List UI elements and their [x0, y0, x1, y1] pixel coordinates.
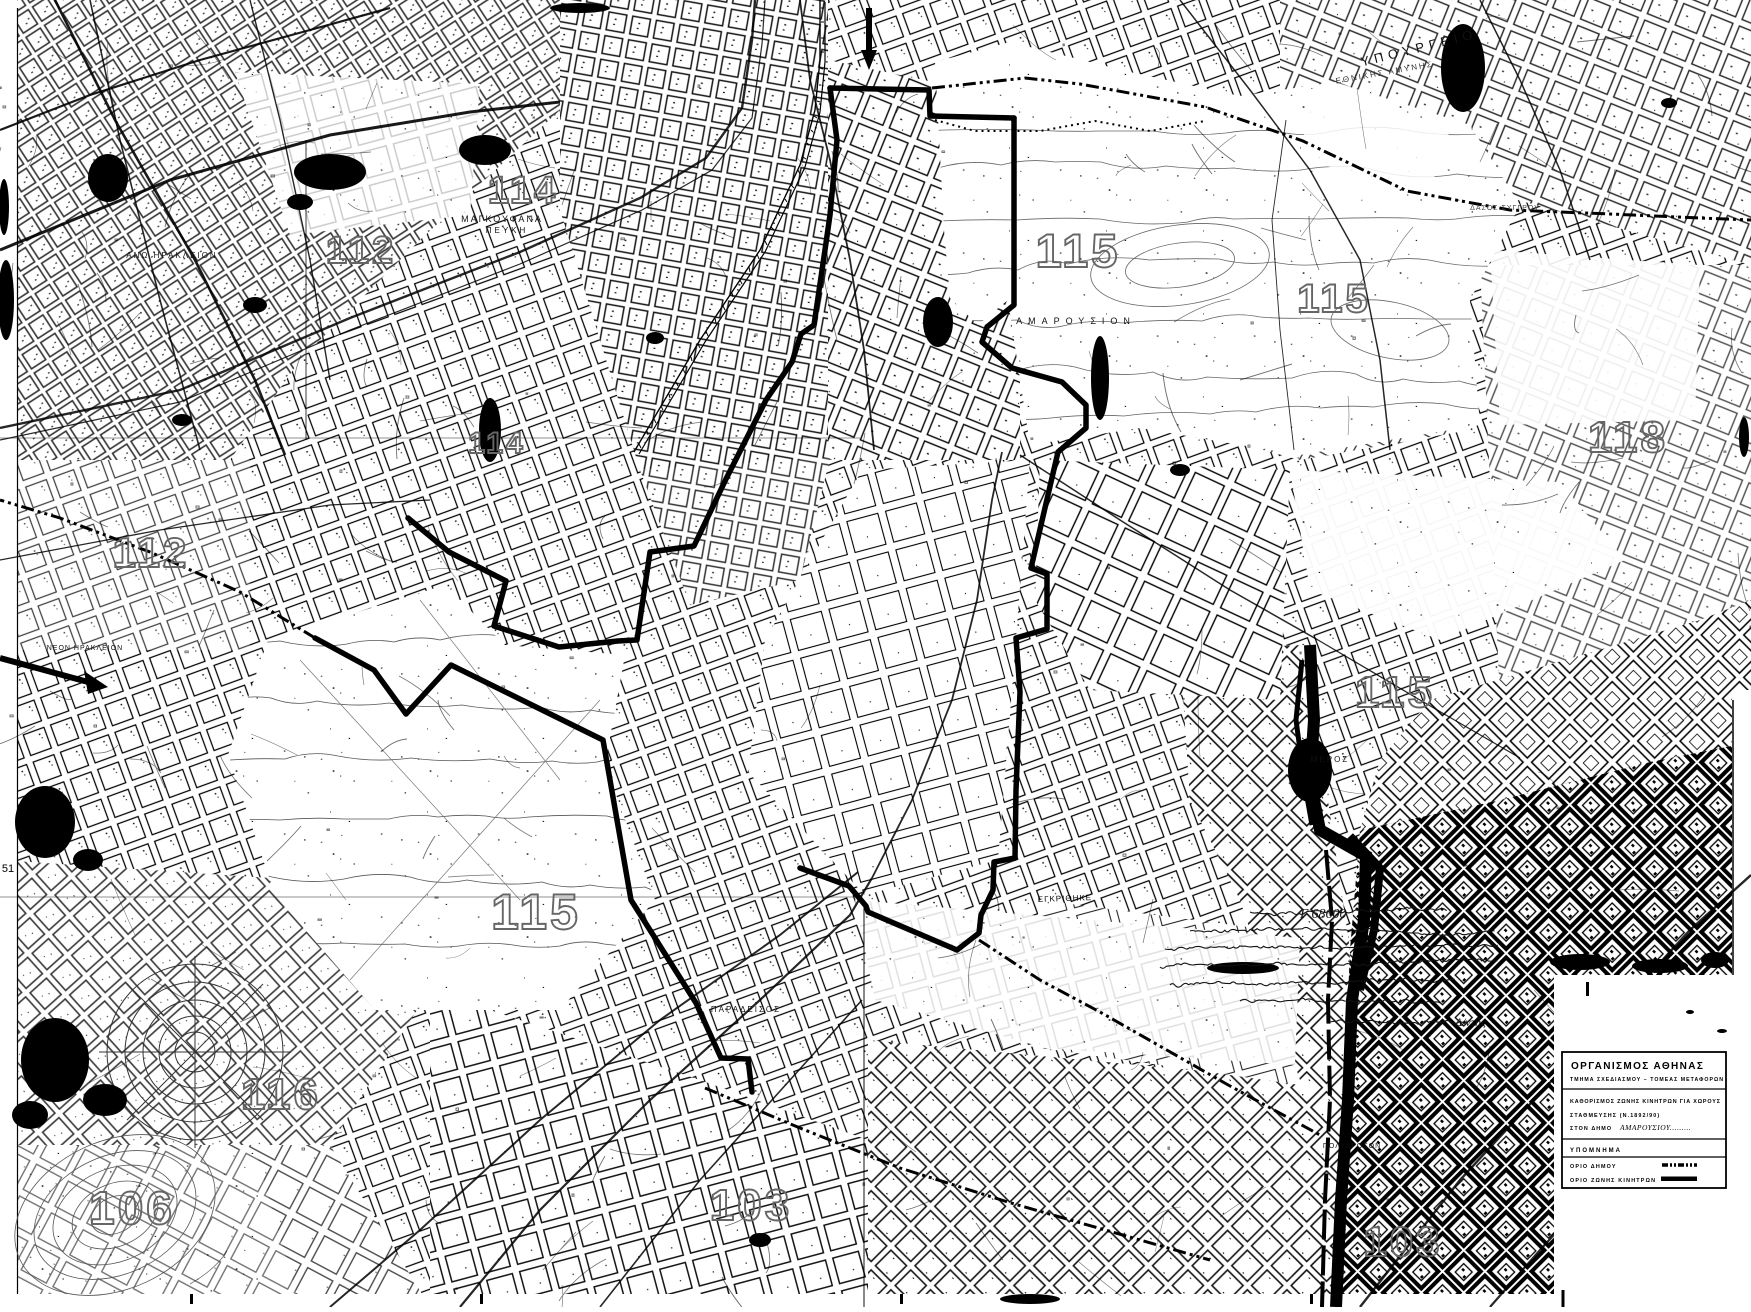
svg-text:ΑΜΑΡΟΥΣΙΟΥ.........: ΑΜΑΡΟΥΣΙΟΥ......... — [1619, 1123, 1691, 1132]
svg-text:ΠΑΡΑΔΕΙΣΟΣ: ΠΑΡΑΔΕΙΣΟΣ — [711, 1005, 781, 1014]
svg-text:ΠΕΥΚΗ: ΠΕΥΚΗ — [486, 226, 529, 235]
svg-text:Γ 68600: Γ 68600 — [1299, 907, 1346, 922]
svg-text:115: 115 — [1355, 668, 1435, 717]
svg-text:103: 103 — [1363, 1218, 1442, 1265]
svg-text:ΟΡΙΟ ΔΗΜΟΥ: ΟΡΙΟ ΔΗΜΟΥ — [1570, 1164, 1617, 1170]
svg-text:115: 115 — [1036, 224, 1121, 277]
svg-text:ΝΕΟΝ ΗΡΑΚΛΕΙΟΝ: ΝΕΟΝ ΗΡΑΚΛΕΙΟΝ — [47, 645, 124, 652]
svg-text:ΜΕΡΟΣ: ΜΕΡΟΣ — [1311, 755, 1350, 764]
svg-text:106: 106 — [89, 1182, 175, 1234]
svg-text:ΥΠΟΜΝΗΜΑ: ΥΠΟΜΝΗΜΑ — [1570, 1148, 1622, 1154]
svg-text:ΤΜΗΜΑ ΣΧΕΔΙΑΣΜΟΥ – ΤΟΜΕΑΣ ΜΕΤΑ: ΤΜΗΜΑ ΣΧΕΔΙΑΣΜΟΥ – ΤΟΜΕΑΣ ΜΕΤΑΦΟΡΩΝ — [1570, 1077, 1724, 1083]
svg-text:Δ/ντής: Δ/ντής — [1454, 1015, 1486, 1029]
svg-text:ΟΡΓΑΝΙΣΜΟΣ ΑΘΗΝΑΣ: ΟΡΓΑΝΙΣΜΟΣ ΑΘΗΝΑΣ — [1571, 1061, 1704, 1072]
svg-text:114: 114 — [468, 427, 525, 460]
svg-text:116: 116 — [241, 1070, 321, 1119]
svg-text:103: 103 — [710, 1181, 792, 1230]
svg-text:ΑΝΩ ΗΡΑΚΛΕΙΟΝ: ΑΝΩ ΗΡΑΚΛΕΙΟΝ — [126, 251, 217, 260]
svg-text:115: 115 — [1297, 277, 1371, 321]
svg-text:ΠΟΛΥΔΡΟΣΟΝ: ΠΟΛΥΔΡΟΣΟΝ — [1323, 1143, 1381, 1150]
svg-text:ΣΤΑΘΜΕΥΣΗΣ (Ν.1892/90): ΣΤΑΘΜΕΥΣΗΣ (Ν.1892/90) — [1570, 1113, 1660, 1119]
svg-text:112: 112 — [113, 529, 190, 576]
svg-text:ΜΑΓΚΟΥΦΑΝΑ: ΜΑΓΚΟΥΦΑΝΑ — [461, 214, 543, 224]
svg-text:ΟΡΙΟ ΖΩΝΗΣ ΚΙΝΗΤΡΩΝ: ΟΡΙΟ ΖΩΝΗΣ ΚΙΝΗΤΡΩΝ — [1570, 1178, 1656, 1184]
svg-text:ΑΜΑΡΟΥΣΙΟΝ: ΑΜΑΡΟΥΣΙΟΝ — [1016, 316, 1136, 326]
svg-text:115: 115 — [491, 884, 581, 940]
svg-text:112: 112 — [326, 230, 396, 272]
svg-text:51: 51 — [2, 863, 14, 875]
svg-text:ΕΓΚΡΙΘΗΚΕ: ΕΓΚΡΙΘΗΚΕ — [1038, 893, 1093, 904]
svg-text:114: 114 — [488, 170, 558, 212]
svg-text:ΚΑΘΟΡΙΣΜΟΣ ΖΩΝΗΣ ΚΙΝΗΤΡΩΝ ΓΙΑ: ΚΑΘΟΡΙΣΜΟΣ ΖΩΝΗΣ ΚΙΝΗΤΡΩΝ ΓΙΑ ΧΩΡΟΥΣ — [1570, 1099, 1721, 1105]
svg-text:118: 118 — [1588, 413, 1668, 462]
svg-text:ΣΤΟΝ ΔΗΜΟ: ΣΤΟΝ ΔΗΜΟ — [1570, 1126, 1612, 1132]
svg-text:ΔΑΣΟΣ ΣΥΓΓΡΟΥ: ΔΑΣΟΣ ΣΥΓΓΡΟΥ — [1470, 205, 1540, 212]
